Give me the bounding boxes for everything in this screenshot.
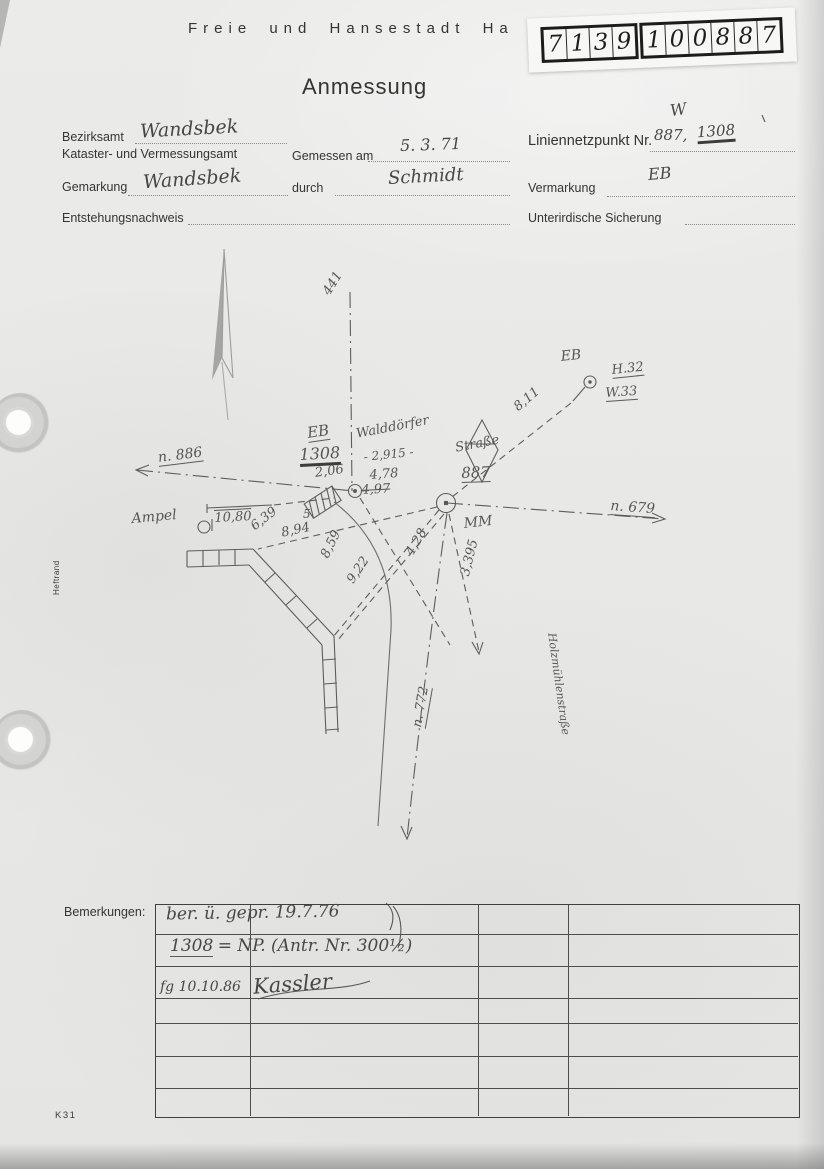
arrow-left	[136, 465, 149, 476]
remarks-table-cell	[479, 967, 569, 999]
bemerkungen-label: Bemerkungen:	[64, 905, 145, 919]
sketch-label: 5	[303, 507, 311, 521]
net-lines	[137, 292, 664, 838]
remarks-table-cell	[569, 935, 798, 967]
vermarkung-value: EB	[647, 163, 672, 184]
sketch-label: 6,39	[248, 504, 280, 534]
arrow-down	[401, 826, 412, 839]
bezirksamt-value: Wandsbek	[139, 115, 238, 142]
sketch-label: Straße	[454, 433, 501, 456]
north-arrow	[212, 249, 233, 420]
sketch-label: 441	[320, 269, 346, 298]
remarks-table-cell	[569, 905, 798, 935]
remark-row-2: 1308 = NP. (Antr. Nr. 300½)	[170, 936, 412, 956]
bezirksamt-line	[135, 143, 287, 144]
sketch-label: 8,94	[280, 520, 311, 541]
remark-row-3: fg 10.10.86 Kassler	[160, 972, 332, 996]
sticker-digit: 3	[588, 27, 612, 58]
margin-label: Heftrand	[52, 560, 61, 595]
sketch-label: W.33	[605, 384, 638, 402]
sketch-label: Walddörfer	[355, 413, 430, 442]
unterirdische-sicherung-label: Unterirdische Sicherung	[528, 211, 661, 225]
point-887	[437, 494, 456, 513]
remarks-table-cell	[569, 999, 798, 1024]
unterirdische-line	[685, 224, 795, 225]
sketch-label: - 2,915 -	[363, 445, 414, 464]
remarks-table-cell	[251, 1024, 479, 1057]
curb-curve	[334, 502, 391, 826]
sketch-label: 10,80	[214, 509, 252, 526]
remarks-table-cell	[569, 1024, 798, 1057]
punkt-nr-value-2: 1308	[696, 121, 736, 145]
sketch-label: MM	[463, 513, 493, 532]
gemessen-line	[368, 161, 510, 162]
remarks-table-cell	[156, 1057, 251, 1089]
sticker-digit: 7	[543, 29, 566, 60]
handwritten-w-annotation: W	[669, 99, 688, 120]
remarks-table-cell	[479, 905, 569, 935]
sticker-digit: 1	[565, 28, 589, 59]
sticker-cell-group: 100887	[639, 17, 783, 59]
bezirksamt-label: Bezirksamt	[62, 130, 124, 144]
remarks-table-cell	[569, 1089, 798, 1116]
sketch-label: Ampel	[131, 507, 177, 527]
sketch-label: 3,395	[458, 538, 482, 578]
durch-label: durch	[292, 181, 323, 195]
registration-sticker: 7139100887	[527, 7, 797, 72]
sketch-label: n. 886	[157, 445, 203, 467]
remarks-table-cell	[479, 999, 569, 1024]
sketch-label: 4,28	[403, 526, 430, 559]
kataster-label: Kataster- und Vermessungsamt	[62, 147, 237, 161]
punkt-nr-value-1: 887,	[654, 126, 687, 144]
liniennetzpunkt-label: Liniennetzpunkt Nr.	[528, 133, 652, 149]
signature-flourishes	[258, 115, 765, 999]
paper-edge-bottom	[0, 1143, 824, 1169]
remarks-table-cell	[569, 1057, 798, 1089]
vermarkung-label: Vermarkung	[528, 181, 595, 195]
remarks-table-cell	[156, 1089, 251, 1116]
sketch-label: 887	[461, 463, 490, 483]
sticker-cell-group: 7139	[540, 23, 638, 63]
vermarkung-line	[607, 196, 795, 197]
sticker-digit: 8	[710, 22, 734, 53]
hole-punch-top	[0, 393, 53, 457]
durch-value: Schmidt	[388, 164, 465, 189]
sticker-digit: 9	[611, 26, 635, 57]
point-1308	[349, 485, 362, 498]
remarks-table-cell	[156, 1024, 251, 1057]
remark-row-1: ber. ü. gepr. 19.7.76	[166, 901, 340, 924]
remarks-table-cell	[479, 1089, 569, 1116]
sketch-label: Holzmühlenstraße	[545, 632, 572, 736]
form-code: K31	[55, 1110, 76, 1121]
remark-row-2-text: = NP. (Antr. Nr. 300½)	[218, 936, 413, 956]
gemarkung-line	[128, 195, 288, 196]
entstehungsnachweis-label: Entstehungsnachweis	[62, 211, 184, 225]
sticker-digit-grid: 7139100887	[540, 17, 783, 63]
scanned-survey-form: Heftrand K31 Freie und Hansestadt Ha Anm…	[0, 0, 824, 1169]
remarks-table-cell	[569, 967, 798, 999]
remarks-table-cell	[156, 999, 251, 1024]
hole-punch-bottom	[0, 710, 55, 774]
scan-corner-artifact	[0, 0, 10, 48]
remarks-table-cell	[251, 1089, 479, 1116]
sticker-digit: 0	[664, 24, 688, 55]
liniennetzpunkt-line	[650, 151, 795, 152]
sketch-label: EB	[306, 421, 330, 443]
wall-band	[187, 549, 339, 734]
sketch-label: 9,22	[344, 554, 373, 586]
sticker-digit: 8	[733, 21, 757, 52]
sketch-label: H.32	[611, 360, 645, 379]
sketch-label: 8,59	[318, 528, 344, 561]
durch-line	[335, 195, 510, 196]
gemarkung-value: Wandsbek	[142, 165, 242, 194]
point-eb-flag	[573, 376, 596, 401]
sticker-digit: 0	[687, 23, 711, 54]
sketch-label: EB	[560, 347, 582, 365]
remarks-table-cell	[479, 1024, 569, 1057]
entstehungsnachweis-line	[188, 224, 510, 225]
gemessen-am-label: Gemessen am	[292, 149, 373, 163]
remarks-table-cell	[251, 1057, 479, 1089]
remarks-table-cell	[479, 935, 569, 967]
sketch-label: 4,97	[361, 481, 391, 497]
sketch-label: n. 679	[610, 498, 656, 518]
arrow-diamond	[472, 642, 483, 654]
paper-edge-right	[796, 0, 824, 1169]
sketch-label: n. 772	[410, 685, 433, 729]
agency-line: Freie und Hansestadt Ha	[188, 20, 514, 37]
remark-row-3-date: fg 10.10.86	[160, 979, 241, 995]
sticker-digit: 1	[642, 25, 665, 56]
sketch-label: 8,11	[511, 384, 543, 414]
page-title: Anmessung	[302, 74, 427, 100]
sticker-digit: 7	[756, 20, 780, 51]
sketch-label: 2,06	[314, 462, 345, 481]
remarks-table-cell	[251, 999, 479, 1024]
remark-row-3-signature: Kassler	[253, 969, 333, 998]
sketch-label: 4,78	[369, 466, 399, 483]
remark-row-2-number: 1308	[170, 936, 213, 957]
gemarkung-label: Gemarkung	[62, 180, 127, 194]
remarks-table-cell	[479, 1057, 569, 1089]
gemessen-am-value: 5. 3. 71	[400, 134, 462, 155]
